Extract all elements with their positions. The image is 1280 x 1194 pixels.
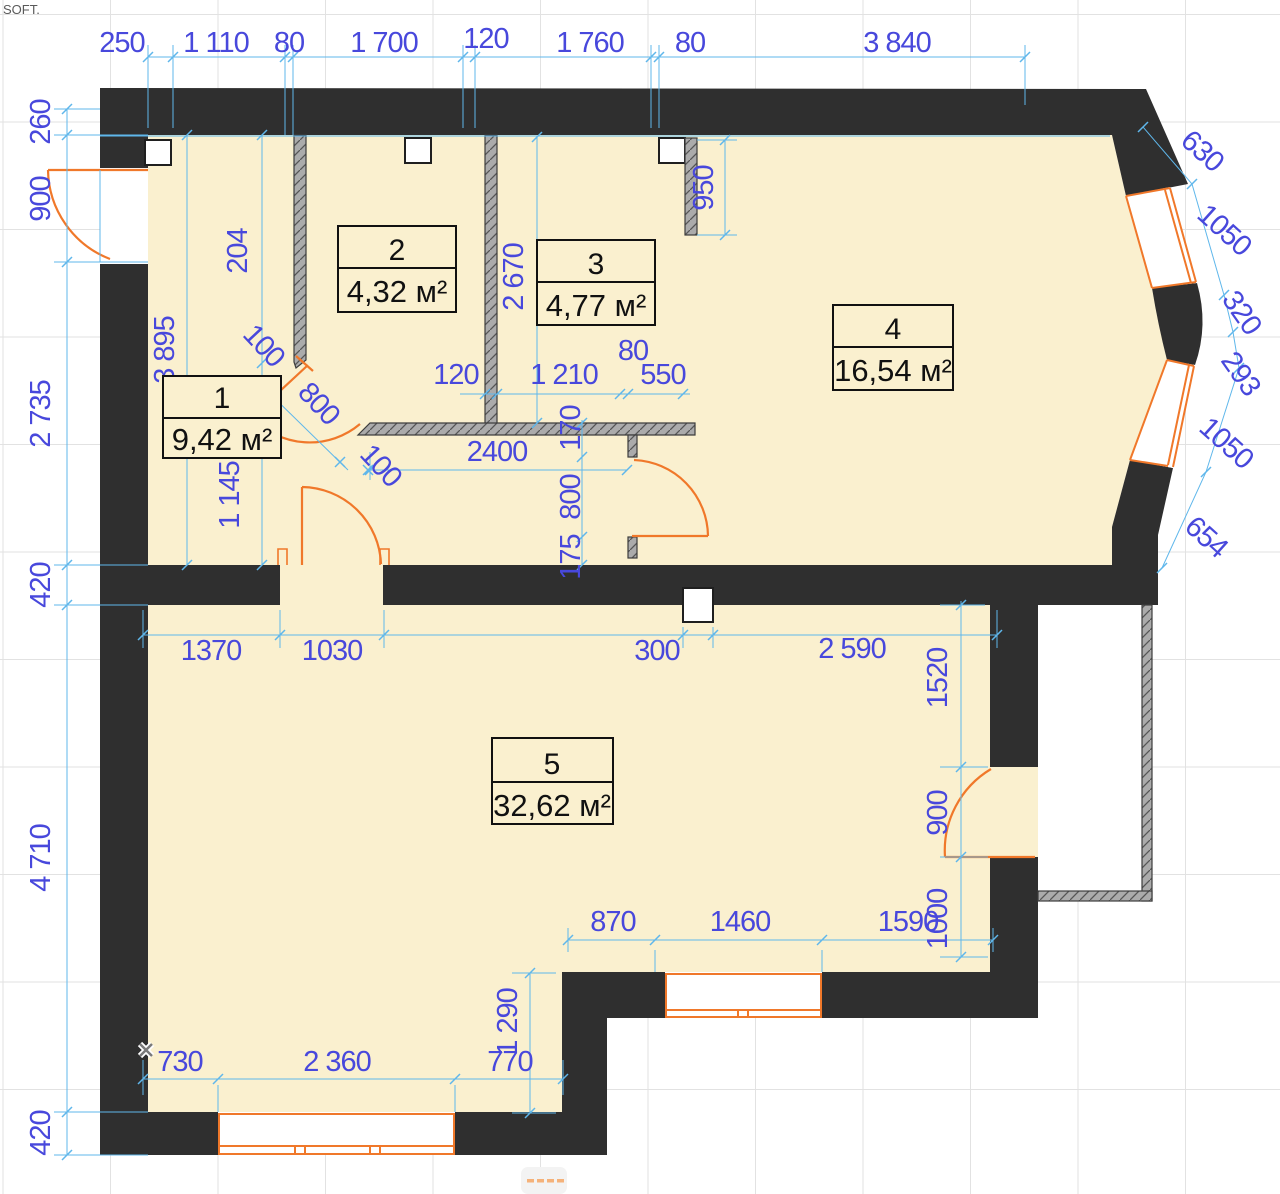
dim-top-1760: 1 760 bbox=[556, 27, 624, 59]
dim-left-420b: 420 bbox=[25, 1110, 57, 1155]
room5-right-wall-lower bbox=[990, 857, 1038, 972]
partition-room1-room2 bbox=[294, 135, 306, 368]
dim-m2-1520: 1520 bbox=[922, 648, 954, 709]
dim-cor-2400: 2400 bbox=[467, 436, 528, 468]
dim-mid-550: 550 bbox=[640, 359, 685, 391]
dim-m2-1370: 1370 bbox=[181, 635, 242, 667]
dim-bay-630: 630 bbox=[1174, 124, 1229, 178]
dim-top-80b: 80 bbox=[675, 27, 705, 59]
dim-cor-170: 170 bbox=[555, 405, 587, 450]
niche-2 bbox=[405, 138, 431, 163]
floor-plan-drawing: 250 1 110 80 1 700 120 1 760 80 3 840 26… bbox=[0, 0, 1280, 1194]
dim-m2-300: 300 bbox=[634, 635, 679, 667]
dim-left-900: 900 bbox=[25, 176, 57, 221]
dim-bay-293: 293 bbox=[1214, 346, 1266, 402]
dim-top-1110: 1 110 bbox=[183, 27, 248, 59]
room-3-label: 3 4,77 м² bbox=[537, 240, 655, 325]
dim-b-870: 870 bbox=[590, 906, 635, 938]
niche-4 bbox=[683, 588, 713, 622]
dim-room3-2670: 2 670 bbox=[498, 243, 530, 311]
room-4-label: 4 16,54 м² bbox=[833, 305, 953, 390]
balcony-wall-right bbox=[1142, 605, 1152, 901]
left-wall bbox=[100, 262, 148, 1155]
dim-left-420a: 420 bbox=[25, 562, 57, 607]
room-5-label: 5 32,62 м² bbox=[492, 738, 613, 824]
dim-top-3840: 3 840 bbox=[863, 27, 931, 59]
room-4-area: 16,54 м² bbox=[834, 353, 952, 388]
door-jamb-bottom bbox=[628, 537, 637, 558]
room-5-number: 5 bbox=[544, 748, 561, 781]
bottom-wall-left-b bbox=[455, 1112, 607, 1155]
partition-room2-room3 bbox=[485, 135, 497, 427]
dim-b-1590: 1590 bbox=[878, 906, 939, 938]
room-5-area: 32,62 м² bbox=[493, 788, 611, 823]
niche-1 bbox=[145, 140, 171, 165]
origin-marker-icon bbox=[140, 1044, 152, 1056]
dim-cor-800: 800 bbox=[555, 474, 587, 519]
bottom-wall-left-a bbox=[100, 1112, 218, 1155]
dim-right-900: 900 bbox=[922, 790, 954, 835]
room-4-number: 4 bbox=[885, 313, 902, 346]
dim-mid-120: 120 bbox=[433, 359, 478, 391]
dim-hall-1145: 1 145 bbox=[214, 461, 246, 529]
partition-corridor bbox=[358, 423, 695, 435]
dim-bay-654: 654 bbox=[1178, 510, 1234, 565]
dim-left-260: 260 bbox=[25, 99, 57, 144]
room-3-area: 4,77 м² bbox=[546, 288, 647, 323]
dim-bt-730: 730 bbox=[157, 1046, 202, 1078]
dim-left-2735: 2 735 bbox=[25, 380, 57, 448]
room-1-number: 1 bbox=[214, 382, 231, 415]
window-bottom-right bbox=[665, 972, 822, 1018]
dim-cor-175: 175 bbox=[555, 534, 587, 579]
left-wall-top bbox=[100, 88, 148, 170]
room-2-label: 2 4,32 м² bbox=[338, 226, 456, 312]
dim-hall-3895: 3 895 bbox=[149, 316, 181, 384]
middle-wall-right bbox=[383, 565, 1158, 605]
dim-bay-1050b: 1050 bbox=[1193, 411, 1259, 475]
dim-hall-204: 204 bbox=[222, 227, 254, 273]
window-bottom-left bbox=[218, 1112, 455, 1155]
room-1-area: 9,42 м² bbox=[172, 422, 273, 457]
balcony-area bbox=[1038, 605, 1142, 892]
dim-mid-1210: 1 210 bbox=[530, 359, 598, 391]
room-2-area: 4,32 м² bbox=[347, 274, 448, 309]
bottom-wall-right-a bbox=[607, 972, 665, 1018]
dim-left-4710: 4 710 bbox=[25, 824, 57, 892]
dim-room3-950: 950 bbox=[688, 165, 720, 210]
room-3-number: 3 bbox=[588, 248, 605, 281]
room-1-label: 1 9,42 м² bbox=[163, 376, 281, 458]
door-jamb-top bbox=[628, 435, 637, 457]
balcony-wall-bottom bbox=[1038, 891, 1152, 901]
dim-top-1700: 1 700 bbox=[350, 27, 418, 59]
dim-top-80a: 80 bbox=[274, 27, 304, 59]
dim-bt-770: 770 bbox=[487, 1046, 532, 1078]
watermark-text: SOFT. bbox=[3, 2, 40, 17]
dashes-handle[interactable] bbox=[521, 1167, 567, 1194]
bottom-wall-right-b bbox=[822, 972, 1038, 1018]
room-2-number: 2 bbox=[389, 234, 406, 267]
middle-wall-left bbox=[148, 565, 280, 605]
dim-bay-1050a: 1050 bbox=[1191, 198, 1257, 262]
niche-3 bbox=[659, 138, 685, 163]
dim-m2-1030: 1030 bbox=[302, 635, 363, 667]
dim-top-120: 120 bbox=[463, 23, 508, 55]
dim-bt-2360: 2 360 bbox=[303, 1046, 371, 1078]
dim-m2-2590: 2 590 bbox=[818, 633, 886, 665]
floor-plan-canvas: 250 1 110 80 1 700 120 1 760 80 3 840 26… bbox=[0, 0, 1280, 1194]
dim-b-1460: 1460 bbox=[710, 906, 771, 938]
dim-top-250: 250 bbox=[99, 27, 144, 59]
entrance-opening bbox=[100, 168, 148, 264]
